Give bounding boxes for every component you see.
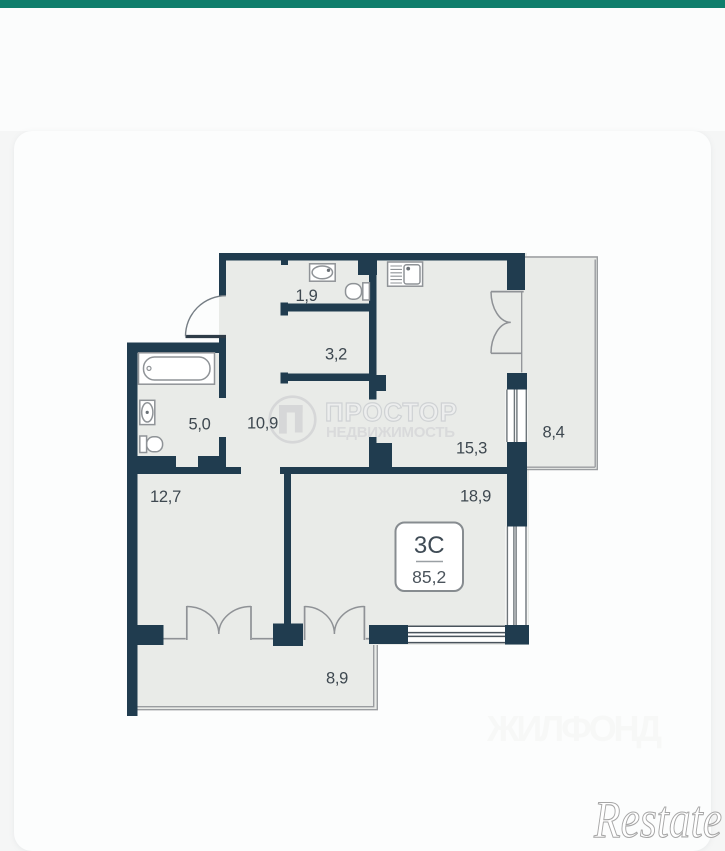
svg-text:1,9: 1,9: [295, 287, 317, 305]
svg-text:18,9: 18,9: [460, 488, 491, 506]
svg-text:3С: 3С: [414, 532, 445, 559]
svg-text:Restate: Restate: [593, 791, 722, 839]
svg-text:8,9: 8,9: [326, 670, 348, 688]
svg-text:ЖИЛФОНД: ЖИЛФОНД: [486, 708, 662, 749]
svg-text:3,2: 3,2: [325, 345, 347, 363]
svg-text:10,9: 10,9: [247, 414, 278, 432]
svg-text:НЕДВИЖИМОСТЬ: НЕДВИЖИМОСТЬ: [326, 424, 455, 441]
svg-text:ПРОСТОР: ПРОСТОР: [325, 397, 457, 427]
svg-text:12,7: 12,7: [150, 488, 181, 506]
svg-text:15,3: 15,3: [456, 439, 487, 457]
svg-text:8,4: 8,4: [542, 423, 564, 441]
svg-text:5,0: 5,0: [188, 416, 210, 434]
svg-text:85,2: 85,2: [412, 567, 446, 587]
